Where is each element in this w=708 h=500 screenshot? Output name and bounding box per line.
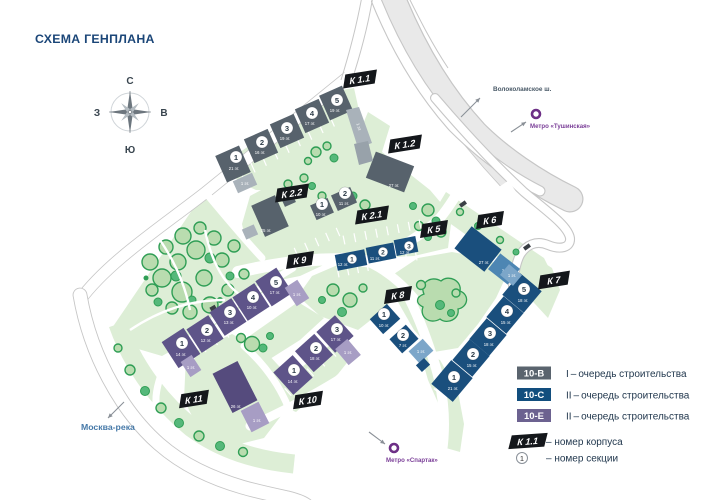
- svg-text:14 эт.: 14 эт.: [288, 379, 298, 384]
- svg-text:2: 2: [343, 189, 347, 198]
- svg-text:Волоколамское ш.: Волоколамское ш.: [493, 86, 552, 93]
- svg-text:21 эт.: 21 эт.: [229, 166, 239, 171]
- svg-text:13 эт.: 13 эт.: [224, 320, 234, 325]
- svg-text:17 эт.: 17 эт.: [270, 290, 280, 295]
- svg-text:12 эт.: 12 эт.: [400, 250, 410, 255]
- svg-text:К 1.1: К 1.1: [516, 435, 540, 447]
- svg-text:15 эт.: 15 эт.: [467, 363, 477, 368]
- svg-text:19 эт.: 19 эт.: [330, 108, 340, 113]
- svg-text:21 эт.: 21 эт.: [448, 386, 458, 391]
- svg-text:1: 1: [350, 256, 354, 263]
- svg-text:19 эт.: 19 эт.: [280, 136, 290, 141]
- svg-text:17 эт.: 17 эт.: [305, 121, 315, 126]
- svg-text:II – очередь строительства: II – очередь строительства: [566, 412, 690, 423]
- svg-text:10-С: 10-С: [524, 390, 545, 401]
- svg-text:1 эт.: 1 эт.: [241, 181, 249, 186]
- svg-text:С: С: [126, 76, 133, 87]
- svg-text:2: 2: [471, 350, 475, 359]
- svg-text:14 эт.: 14 эт.: [176, 352, 186, 357]
- svg-text:– номер корпуса: – номер корпуса: [546, 437, 623, 448]
- svg-text:10-Е: 10-Е: [524, 411, 544, 422]
- svg-text:1 эт.: 1 эт.: [253, 418, 261, 423]
- svg-text:1 эт.: 1 эт.: [417, 349, 425, 354]
- svg-text:18 эт.: 18 эт.: [518, 298, 528, 303]
- svg-text:Ю: Ю: [125, 145, 135, 156]
- svg-text:12 эт.: 12 эт.: [338, 262, 348, 267]
- svg-text:11 эт.: 11 эт.: [370, 256, 380, 261]
- svg-text:2: 2: [401, 331, 405, 340]
- svg-text:2: 2: [314, 344, 318, 353]
- svg-text:2: 2: [381, 249, 385, 256]
- svg-text:– номер секции: – номер секции: [546, 454, 618, 465]
- svg-text:СХЕМА ГЕНПЛАНА: СХЕМА ГЕНПЛАНА: [35, 32, 155, 46]
- svg-text:3: 3: [335, 325, 339, 334]
- svg-text:17 эт.: 17 эт.: [331, 337, 341, 342]
- svg-text:3: 3: [285, 124, 289, 133]
- svg-text:18 эт.: 18 эт.: [310, 356, 320, 361]
- svg-text:10 эт.: 10 эт.: [247, 305, 257, 310]
- svg-text:2: 2: [260, 138, 264, 147]
- svg-text:10 эт.: 10 эт.: [316, 212, 326, 217]
- svg-text:12 эт.: 12 эт.: [201, 338, 211, 343]
- svg-text:1 эт.: 1 эт.: [508, 273, 516, 278]
- svg-text:Метро «Спартак»: Метро «Спартак»: [386, 457, 438, 464]
- svg-text:3: 3: [228, 308, 232, 317]
- svg-text:3: 3: [488, 329, 492, 338]
- svg-text:11 эт.: 11 эт.: [339, 201, 349, 206]
- svg-text:З: З: [94, 108, 100, 119]
- svg-text:В: В: [160, 108, 167, 119]
- svg-text:16 эт.: 16 эт.: [255, 150, 265, 155]
- svg-text:18 эт.: 18 эт.: [484, 342, 494, 347]
- svg-text:2: 2: [205, 326, 209, 335]
- svg-text:1: 1: [520, 454, 524, 463]
- svg-text:1 эт.: 1 эт.: [344, 350, 352, 355]
- svg-text:25 эт.: 25 эт.: [261, 228, 271, 233]
- svg-text:26 эт.: 26 эт.: [231, 404, 241, 409]
- svg-text:II – очередь строительства: II – очередь строительства: [566, 391, 690, 402]
- svg-text:I – очередь строительства: I – очередь строительства: [566, 369, 687, 380]
- svg-text:10-В: 10-В: [524, 369, 545, 380]
- svg-text:27 эт.: 27 эт.: [479, 260, 489, 265]
- svg-text:Москва-река: Москва-река: [81, 422, 135, 432]
- svg-text:Метро «Тушинская»: Метро «Тушинская»: [530, 123, 591, 130]
- svg-text:10 эт.: 10 эт.: [379, 323, 389, 328]
- svg-text:7 эт.: 7 эт.: [399, 343, 407, 348]
- svg-text:1 эт.: 1 эт.: [293, 292, 301, 297]
- svg-text:27 эт.: 27 эт.: [389, 183, 399, 188]
- svg-text:15 эт.: 15 эт.: [501, 320, 511, 325]
- svg-text:1 эт.: 1 эт.: [187, 365, 195, 370]
